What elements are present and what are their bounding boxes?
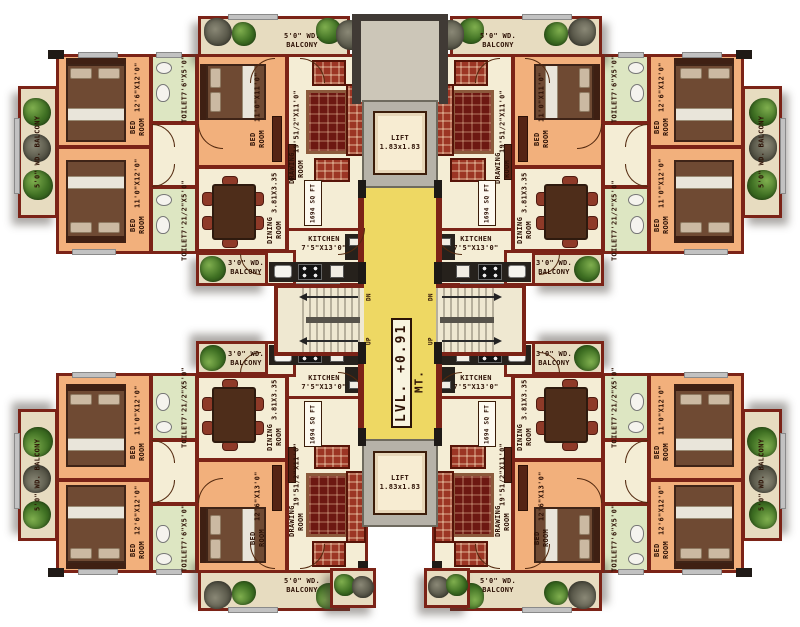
- shaft-wall: [352, 14, 448, 21]
- wall-stub: [358, 262, 366, 284]
- bed-room-center-dims: 11'0"X11'0": [538, 72, 547, 122]
- window: [684, 249, 728, 255]
- stair-dn-label: DN: [364, 289, 374, 305]
- room-name: DRAWING ROOM: [494, 153, 512, 185]
- dining-table: [544, 184, 588, 240]
- room-dims: 12'6"X12'0": [658, 62, 667, 112]
- room-name: TOILET: [611, 234, 620, 261]
- balcony-label-line2: BALCONY: [286, 41, 318, 50]
- drawing-room-label: DRAWING ROOM 19'51/2"X11'0": [288, 92, 306, 182]
- room-dims: 7'21/2"X5'0": [611, 179, 620, 233]
- bed-room-center-dims: 11'0"X11'0": [254, 72, 263, 122]
- stair-landing-right: [498, 284, 526, 356]
- pillow: [708, 68, 730, 79]
- plant: [352, 576, 374, 598]
- bed-runner: [676, 108, 732, 121]
- bed-headboard: [593, 64, 600, 120]
- lift-label: LIFT 1.83x1.83: [373, 111, 427, 175]
- room-dims: 7'5"X13'0": [301, 244, 346, 253]
- room-name: DINING ROOM: [266, 213, 284, 248]
- toilet-seat: [630, 216, 644, 234]
- bedroom-center-label: BED ROOM 11'0"X11'0": [248, 72, 268, 156]
- room-dims: 11'0"X12'0": [134, 158, 143, 208]
- window: [522, 14, 572, 20]
- pillow: [579, 68, 590, 88]
- room-dims: 3.81X3.35: [271, 172, 280, 213]
- room-dims: 7'21/2"X5'0": [181, 179, 190, 233]
- stair-arrow: [442, 340, 494, 342]
- balcony-label-line2: BALCONY: [538, 268, 570, 277]
- room-dims: 3.81X3.35: [521, 172, 530, 213]
- bedroom-center-label: BED ROOM 11'0"X11'0": [532, 72, 552, 156]
- side-balcony-label: 5'0" WD. BALCONY: [746, 96, 778, 208]
- room-name: TOILET: [611, 96, 620, 123]
- room-dims: 19'51/2"X11'0": [499, 90, 508, 153]
- balcony-label-line1: 3'0" WD.: [536, 259, 572, 268]
- armchair: [450, 158, 486, 182]
- kitchen-balcony-label: 3'0" WD. BALCONY: [226, 256, 266, 280]
- toilet-b-label: TOILET 7'21/2"X5'0": [176, 190, 194, 250]
- wall-corner: [736, 50, 752, 59]
- wall-stub: [434, 262, 442, 284]
- area-label: 1694 SQ FT: [478, 180, 496, 226]
- balcony-label-line1: 5'0" WD.: [284, 32, 320, 41]
- side-balcony-label: 5'0" WD. BALCONY: [22, 96, 54, 208]
- bedroom-corner-inner-label: BED ROOM 11'0"X12'0": [652, 158, 672, 242]
- stair-arrow: [306, 296, 358, 298]
- stair-rail: [440, 317, 494, 323]
- room-dims: 7'5"X13'0": [453, 244, 498, 253]
- window: [780, 118, 786, 194]
- plant: [544, 22, 568, 46]
- stair-dn-label: DN: [426, 289, 436, 305]
- kitchen-label: KITCHEN 7'5"X13'0": [292, 234, 356, 254]
- area-label: 1694 SQ FT: [304, 180, 322, 226]
- dining-room-label: DINING ROOM 3.81X3.35: [516, 172, 534, 248]
- kitchen-label: KITCHEN 7'5"X13'0": [444, 234, 508, 254]
- lift-dims: 1.83x1.83: [380, 483, 421, 492]
- bedroom-corner-outer-label: BED ROOM 12'6"X12'0": [128, 62, 148, 142]
- arrow-head-icon: [299, 337, 307, 345]
- balcony-label-line1: 3'0" WD.: [228, 259, 264, 268]
- toilet-seat: [630, 84, 644, 102]
- room-dims: 7'6"X5'0": [611, 55, 620, 96]
- room-name: KITCHEN: [460, 235, 492, 244]
- drawing-room-label: DRAWING ROOM 19'51/2"X11'0": [494, 92, 512, 182]
- bed-headboard: [674, 236, 734, 243]
- room-name: TOILET: [181, 234, 190, 261]
- floor-plan: 5'0" WD. BALCONY BED ROOM 12'6"X12'0" BE…: [0, 0, 800, 627]
- lift-name: LIFT: [391, 134, 409, 143]
- front-balcony-label: 5'0" WD. BALCONY: [478, 30, 518, 52]
- room-name: BED ROOM: [653, 208, 671, 242]
- arrow-head-icon: [299, 293, 307, 301]
- sink: [628, 62, 644, 74]
- toilet-b-label: TOILET 7'21/2"X5'0": [606, 190, 624, 250]
- level-label: LVL. +0.91: [391, 318, 412, 428]
- toilet-a-label: TOILET 7'6"X5'0": [606, 58, 624, 120]
- lift-dims: 1.83x1.83: [380, 143, 421, 152]
- plant: [446, 574, 468, 596]
- dining-room-label: DINING ROOM 3.81X3.35: [266, 172, 284, 248]
- room-dims: 7'6"X5'0": [181, 55, 190, 96]
- room-name: BED ROOM: [129, 208, 147, 242]
- room-dims: 19'51/2"X11'0": [293, 90, 302, 153]
- balcony-label-line2: BALCONY: [230, 268, 262, 277]
- room-dims: 12'6"X12'0": [134, 62, 143, 112]
- stair-up-label: UP: [364, 333, 374, 349]
- room-name: BED ROOM: [129, 112, 147, 142]
- pillow: [579, 92, 590, 112]
- wall-stub: [434, 180, 442, 198]
- room-dims: 11'0"X12'0": [658, 158, 667, 208]
- wall-stub: [358, 180, 366, 198]
- room-name: BED ROOM: [533, 122, 551, 156]
- front-balcony-label: 5'0" WD. BALCONY: [282, 30, 322, 52]
- lift-name: LIFT: [391, 474, 409, 483]
- plant: [568, 18, 596, 46]
- balcony-label-line1: 5'0" WD.: [480, 32, 516, 41]
- plant: [574, 256, 600, 282]
- lift-shaft-top: [360, 16, 440, 102]
- toilet-a-label: TOILET 7'6"X5'0": [176, 58, 194, 120]
- lift-label: LIFT 1.83x1.83: [373, 451, 427, 515]
- room-name: TOILET: [181, 96, 190, 123]
- counter-box: [456, 265, 470, 278]
- bedroom-corner-outer-label: BED ROOM 12'6"X12'0": [652, 62, 672, 142]
- wardrobe: [518, 116, 528, 162]
- balcony-label-line2: BALCONY: [482, 41, 514, 50]
- shaft-wall: [352, 14, 361, 104]
- room-name: DINING ROOM: [516, 213, 534, 248]
- pillow: [680, 68, 702, 79]
- pillow: [680, 222, 702, 233]
- stair-landing-left: [274, 284, 302, 356]
- room-name: BED ROOM: [653, 112, 671, 142]
- kitchen-sink: [508, 265, 526, 278]
- bedroom-corner-inner-label: BED ROOM 11'0"X12'0": [128, 158, 148, 242]
- carpet: [452, 90, 494, 154]
- stove-icon: [478, 264, 502, 280]
- stair-arrow: [442, 296, 494, 298]
- wall-stub: [358, 428, 366, 446]
- kitchen-balcony-label: 3'0" WD. BALCONY: [534, 256, 574, 280]
- room-name: BED ROOM: [249, 122, 267, 156]
- stair-arrow: [306, 340, 358, 342]
- wall-stub: [434, 428, 442, 446]
- stair-up-label: UP: [426, 333, 436, 349]
- room-name: KITCHEN: [308, 235, 340, 244]
- pillow: [708, 222, 730, 233]
- shaft-wall: [439, 14, 448, 104]
- sink: [628, 194, 644, 206]
- stair-rail: [306, 317, 360, 323]
- window: [682, 52, 722, 58]
- level-unit-label: MT.: [412, 362, 427, 402]
- bed-runner: [676, 176, 732, 189]
- arrow-head-icon: [494, 293, 502, 301]
- arrow-head-icon: [494, 337, 502, 345]
